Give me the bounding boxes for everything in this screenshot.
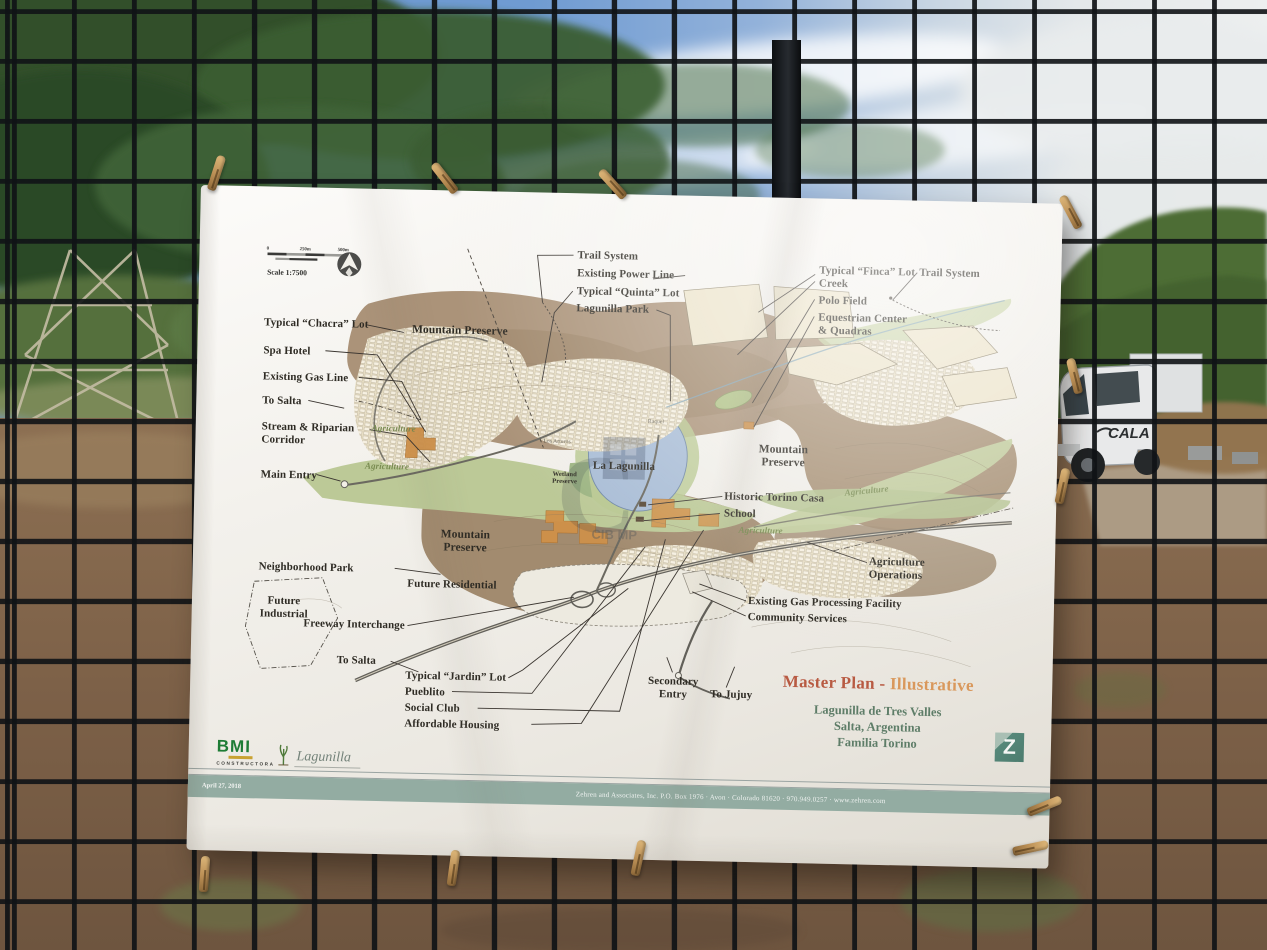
map-label-mountain-preserve-right: Mountain Preserve <box>758 443 808 471</box>
watermark-text: CIB MP <box>591 527 637 543</box>
master-plan-poster: 0 250m 500m Scale 1:7500 C CIB MP Typica… <box>186 185 1062 869</box>
map-callout-main-entry: Main Entry <box>261 468 318 482</box>
architect-credit: Zehren and Associates, Inc. P.O. Box 197… <box>576 790 886 805</box>
map-callout-quinta-lot: Typical “Quinta” Lot <box>577 285 680 300</box>
bmi-logo: BMI CONSTRUCTORA <box>216 737 275 766</box>
construction-site-photo: { "scene": { "truck_label": "CALA" }, "p… <box>0 0 1267 950</box>
map-label-wetland-preserve: Wetland Preserve <box>552 471 577 486</box>
map-callout-to-jujuy: To Jujuy <box>710 688 753 702</box>
map-label-la-lagunilla: La Lagunilla <box>593 460 655 474</box>
map-callout-neighborhood-park: Neighborhood Park <box>259 560 354 575</box>
map-label-mountain-preserve-top: Mountain Preserve <box>412 324 508 339</box>
truck-logo-text: CALA <box>1108 425 1150 442</box>
map-callout-finca-lot-creek: Typical “Finca” Lot Creek <box>819 265 915 292</box>
bmi-gold-bar <box>228 756 252 760</box>
map-callout-stream-riparian-corridor: Stream & Riparian Corridor <box>261 420 354 447</box>
map-callout-social-club: Social Club <box>405 702 460 716</box>
scale-bar: 0 250m 500m Scale 1:7500 <box>266 246 349 278</box>
map-label-raquel: Raquel <box>648 419 664 426</box>
map-callout-equestrian-center: Equestrian Center & Quadras <box>818 311 907 338</box>
map-callout-secondary-entry: Secondary Entry <box>648 675 699 701</box>
map-callout-polo-field: Polo Field <box>818 295 867 309</box>
title-block: Master Plan - Illustrative Lagunilla de … <box>781 672 974 753</box>
map-callout-historic-torino-casa: Historic Torino Casa <box>724 490 824 505</box>
map-callout-school: School <box>724 507 756 520</box>
poster-title: Master Plan - Illustrative <box>783 672 975 696</box>
map-label-future-residential: Future Residential <box>407 578 497 593</box>
map-callout-chacra-lot: Typical “Chacra” Lot <box>264 316 369 331</box>
map-label-agriculture-1: Agriculture <box>372 423 416 434</box>
map-callout-trail-system-right: Trail System <box>919 267 980 281</box>
map-label-agriculture-4: Agriculture <box>738 525 782 536</box>
map-callout-spa-hotel: Spa Hotel <box>263 344 310 358</box>
map-callout-lagunilla-park: Lagunilla Park <box>576 302 649 316</box>
zehren-logo: Z <box>995 732 1025 762</box>
svg-text:250m: 250m <box>300 247 311 252</box>
map-callout-trail-system-top: Trail System <box>577 249 638 263</box>
poster-date: April 27, 2018 <box>202 782 241 790</box>
map-callout-community-services: Community Services <box>748 611 848 626</box>
map-callout-jardin-lot: Typical “Jardin” Lot <box>405 670 506 685</box>
map-callout-to-salta-upper: To Salta <box>262 394 301 407</box>
svg-text:0: 0 <box>267 246 270 251</box>
map-label-mountain-preserve-bottom: Mountain Preserve <box>440 528 490 556</box>
map-callout-to-salta-lower: To Salta <box>337 654 376 667</box>
scale-label: Scale 1:7500 <box>267 267 307 277</box>
map-label-los-arturos: Los Arturos <box>543 439 570 446</box>
map-label-future-industrial: Future Industrial <box>259 594 308 620</box>
watermark: C CIB MP <box>555 432 646 558</box>
plant-icon <box>276 743 291 767</box>
map-callout-existing-power-line: Existing Power Line <box>577 267 674 282</box>
map-callout-affordable-housing: Affordable Housing <box>404 718 499 733</box>
map-label-agriculture-2: Agriculture <box>365 461 409 472</box>
map-callout-pueblito: Pueblito <box>405 686 445 700</box>
map-callout-freeway-interchange: Freeway Interchange <box>303 617 405 632</box>
map-callout-agriculture-operations: Agriculture Operations <box>869 556 925 582</box>
lagunilla-logo: Lagunilla <box>276 743 361 769</box>
map-callout-existing-gas-line: Existing Gas Line <box>263 370 349 385</box>
